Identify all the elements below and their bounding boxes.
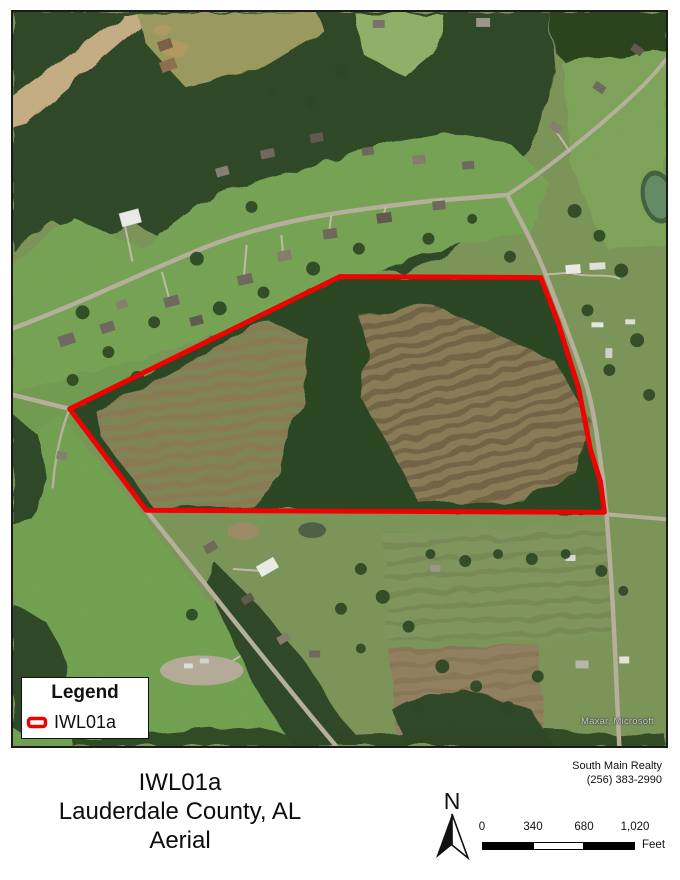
- map-attribution: Maxar, Microsoft: [581, 716, 654, 727]
- map-title-line: Lauderdale County, AL: [10, 797, 350, 826]
- map-title: IWL01a Lauderdale County, AL Aerial: [10, 768, 350, 855]
- map-title-line: Aerial: [10, 826, 350, 855]
- legend-item: IWL01a: [26, 712, 116, 733]
- aerial-imagery: [13, 12, 666, 746]
- scale-unit-label: Feet: [642, 839, 665, 851]
- contact-info: South Main Realty (256) 383-2990: [572, 760, 662, 787]
- legend: Legend IWL01a: [21, 677, 149, 739]
- parcel-symbol-icon: [26, 716, 48, 729]
- map-frame: Maxar, Microsoft: [11, 10, 668, 748]
- contact-line: South Main Realty: [572, 760, 662, 774]
- scale-bar-graphic: [482, 842, 635, 850]
- scale-tick: 1,020: [605, 821, 665, 833]
- legend-item-label: IWL01a: [54, 712, 116, 733]
- north-label: N: [444, 788, 461, 814]
- legend-title: Legend: [22, 682, 148, 704]
- map-title-line: IWL01a: [10, 768, 350, 797]
- scale-bar: 0 340 680 1,020 Feet: [470, 820, 680, 860]
- contact-line: (256) 383-2990: [572, 774, 662, 788]
